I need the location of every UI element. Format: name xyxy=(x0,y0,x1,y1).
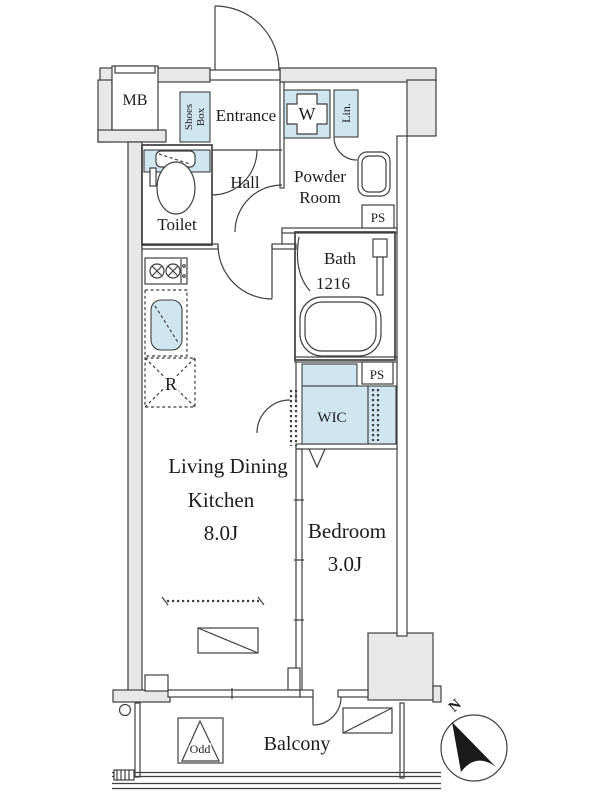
right-exterior-wall xyxy=(397,136,407,636)
toilet-bowl xyxy=(157,162,195,214)
odd-label: Odd xyxy=(190,742,211,756)
ldk-window-step xyxy=(145,675,168,691)
ps-mid-label: PS xyxy=(370,367,384,382)
entrance-door-swing-arc xyxy=(215,6,279,70)
bedroom-label: Bedroom xyxy=(308,519,386,543)
entrance-threshold xyxy=(210,70,280,80)
entrance-door xyxy=(210,6,280,80)
shoes-box-label-line1: Shoes xyxy=(183,104,195,130)
powder-door-swing-arc xyxy=(235,185,282,232)
bedroom-window-right xyxy=(338,690,368,697)
meter-box: MB xyxy=(112,66,158,130)
washer-label: W xyxy=(299,104,316,124)
wic-floor xyxy=(302,386,396,444)
ldk-size-label: 8.0J xyxy=(204,521,238,545)
ldk-bedroom-partition xyxy=(296,449,302,690)
bath-label-line2: 1216 xyxy=(316,274,350,293)
powder-room-label-line1: Powder xyxy=(294,167,346,186)
washer-linen: W Lin. xyxy=(284,90,358,160)
bedroom-window-left xyxy=(300,690,313,697)
hall-label: Hall xyxy=(230,173,260,192)
ldk-label-line2: Kitchen xyxy=(188,488,255,512)
wic: PS WIC xyxy=(257,362,396,467)
entrance-hall: Shoes Box Entrance Hall xyxy=(180,92,282,299)
mb-alcove-bottom-wall xyxy=(98,130,166,142)
shoes-box-label-line2: Box xyxy=(195,107,207,126)
balcony: Odd Balcony xyxy=(112,703,441,789)
ldk-top-wall-right xyxy=(272,244,296,249)
powder-room-label-line2: Room xyxy=(299,188,341,207)
balcony-label: Balcony xyxy=(264,733,331,755)
bath-door-line xyxy=(297,237,310,291)
top-right-wall-block xyxy=(407,80,436,136)
entrance-label: Entrance xyxy=(216,106,276,125)
linen-label: Lin. xyxy=(339,103,353,123)
mb-label: MB xyxy=(123,92,148,109)
wic-shelf xyxy=(302,364,357,386)
bottom-right-pillar xyxy=(368,633,433,700)
balcony-drain xyxy=(120,705,131,716)
linen-door-swing-arc xyxy=(334,137,357,160)
ldk-door-swing-arc xyxy=(218,245,272,299)
wic-label: WIC xyxy=(317,410,346,426)
bath-label-line1: Bath xyxy=(324,249,357,268)
balcony-partition xyxy=(400,703,404,778)
refrigerator-label: R xyxy=(165,374,177,394)
partition-bottom-step xyxy=(288,668,300,690)
floor-plan: MB Toilet Shoes Bo xyxy=(0,0,600,800)
left-exterior-wall xyxy=(128,142,142,692)
bath-room: Bath 1216 xyxy=(295,232,395,360)
north-label: N xyxy=(446,696,465,715)
toilet-room: Toilet xyxy=(142,145,257,245)
ldk-label-line1: Living Dining xyxy=(168,454,288,478)
bedroom-door-swing-arc xyxy=(257,400,290,433)
ldk: Living Dining Kitchen 8.0J R xyxy=(145,258,288,653)
bedroom: Bedroom 3.0J xyxy=(308,519,386,576)
balcony-door-swing-arc xyxy=(313,697,341,725)
floor-plan-drawing: MB Toilet Shoes Bo xyxy=(0,0,600,800)
bedroom-top-wall xyxy=(296,444,397,449)
toilet-label: Toilet xyxy=(157,215,197,234)
bath-counter xyxy=(373,239,387,257)
bedroom-size-label: 3.0J xyxy=(328,552,362,576)
ps-top-label: PS xyxy=(371,210,385,225)
balcony-left-wall xyxy=(135,703,140,777)
meter-box-cap xyxy=(115,66,155,73)
compass: N xyxy=(441,696,507,781)
powder-room: Powder Room PS xyxy=(294,152,394,228)
hall-powder-wall xyxy=(280,82,284,188)
toilet-flush-handle xyxy=(150,168,156,186)
pillar-foot xyxy=(433,686,441,702)
bath-towel-rail xyxy=(377,257,383,295)
bottom-wall-left xyxy=(113,690,170,702)
wic-folding-door-mark xyxy=(309,449,325,467)
ldk-window xyxy=(168,690,300,697)
